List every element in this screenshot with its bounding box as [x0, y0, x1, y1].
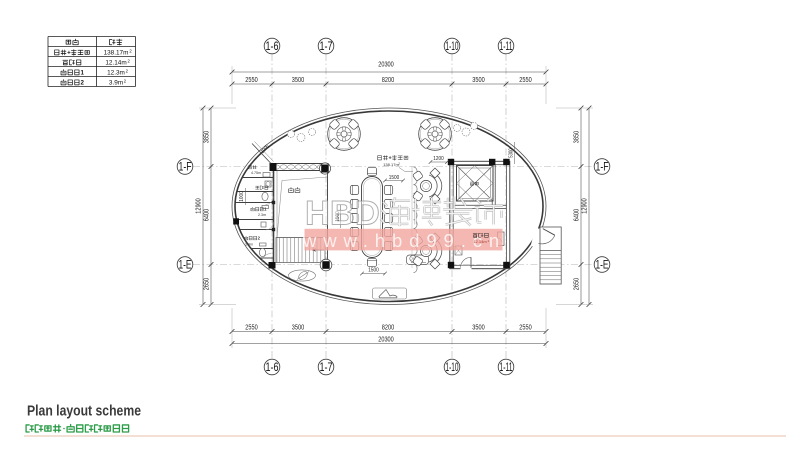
- svg-text:1-10: 1-10: [446, 41, 459, 53]
- svg-text:1-E: 1-E: [596, 260, 609, 272]
- svg-text:2550: 2550: [519, 325, 532, 332]
- svg-text:138.17m: 138.17m: [104, 49, 129, 56]
- svg-text:6400: 6400: [574, 209, 581, 222]
- svg-text:1500: 1500: [389, 175, 399, 181]
- svg-text:12900: 12900: [582, 198, 589, 214]
- svg-text:6400: 6400: [204, 209, 211, 222]
- svg-text:3.9m: 3.9m: [109, 79, 123, 86]
- svg-text:12900: 12900: [196, 198, 203, 214]
- svg-text:3500: 3500: [472, 77, 485, 84]
- svg-text:2650: 2650: [574, 278, 581, 291]
- svg-text:+: +: [67, 49, 71, 56]
- svg-text:3500: 3500: [292, 325, 305, 332]
- svg-text:4.75m: 4.75m: [251, 171, 261, 175]
- svg-text:5300: 5300: [509, 148, 515, 157]
- svg-text:1-F: 1-F: [596, 162, 609, 174]
- svg-text:1-6: 1-6: [266, 362, 279, 374]
- svg-text:1-11: 1-11: [500, 41, 513, 53]
- svg-text:3500: 3500: [292, 77, 305, 84]
- svg-text:1000: 1000: [239, 191, 245, 201]
- svg-text:20300: 20300: [378, 337, 394, 344]
- svg-text:2550: 2550: [245, 325, 258, 332]
- svg-text:1-6: 1-6: [266, 41, 279, 53]
- svg-text:3.9m: 3.9m: [245, 243, 253, 247]
- svg-text:8200: 8200: [382, 325, 395, 332]
- svg-text:1-10: 1-10: [446, 362, 459, 374]
- svg-text:1500: 1500: [368, 268, 378, 274]
- svg-text:1: 1: [81, 69, 85, 76]
- svg-text:12.3m: 12.3m: [107, 69, 125, 76]
- svg-text:3500: 3500: [472, 325, 485, 332]
- svg-text:1200: 1200: [433, 156, 443, 162]
- svg-text:1-F: 1-F: [179, 162, 192, 174]
- svg-text:20300: 20300: [378, 62, 394, 69]
- svg-text:3850: 3850: [204, 131, 211, 144]
- svg-text:1-11: 1-11: [500, 362, 513, 374]
- svg-text:+: +: [389, 156, 392, 162]
- svg-text:1-E: 1-E: [179, 260, 192, 272]
- svg-text:12.14m: 12.14m: [105, 59, 126, 66]
- svg-text:12.14m: 12.14m: [473, 239, 487, 244]
- svg-text:8200: 8200: [382, 77, 395, 84]
- svg-text:2550: 2550: [245, 77, 258, 84]
- svg-text:2550: 2550: [519, 77, 532, 84]
- svg-text:1-7: 1-7: [320, 41, 333, 53]
- svg-text:2: 2: [81, 79, 85, 86]
- svg-text:Plan layout scheme: Plan layout scheme: [27, 403, 141, 420]
- svg-text:2650: 2650: [204, 278, 211, 291]
- svg-text:2.3m: 2.3m: [258, 213, 266, 217]
- svg-text:HBD: HBD: [305, 195, 380, 233]
- svg-text:3850: 3850: [574, 131, 581, 144]
- svg-text:138.17m: 138.17m: [383, 162, 399, 167]
- svg-text:1-7: 1-7: [320, 362, 333, 374]
